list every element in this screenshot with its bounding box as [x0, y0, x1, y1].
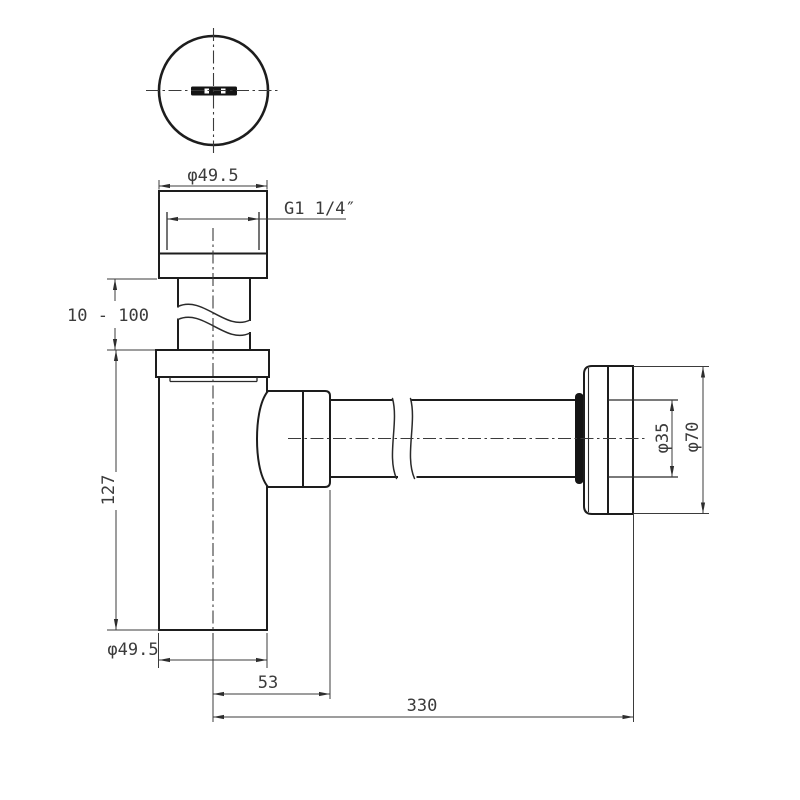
dim-label-inlet-adjust: 10 - 100 — [67, 306, 149, 326]
dim-label-flange-diameter: φ70 — [683, 422, 703, 453]
dim-label-pipe-length: 330 — [407, 696, 438, 716]
technical-drawing: φ49.5 G1 1/4″ 10 - 100 127 φ49.5 53 — [0, 0, 800, 800]
paper-background — [0, 0, 800, 800]
dim-label-top-diameter: φ49.5 — [187, 166, 238, 186]
dim-label-body-height: 127 — [99, 475, 119, 506]
drawing-canvas: φ49.5 G1 1/4″ 10 - 100 127 φ49.5 53 — [0, 0, 800, 800]
dim-label-outlet-offset: 53 — [258, 673, 278, 693]
dim-label-pipe-diameter: φ35 — [653, 423, 673, 454]
dim-label-thread: G1 1/4″ — [284, 199, 356, 219]
dim-label-body-diameter: φ49.5 — [107, 640, 158, 660]
